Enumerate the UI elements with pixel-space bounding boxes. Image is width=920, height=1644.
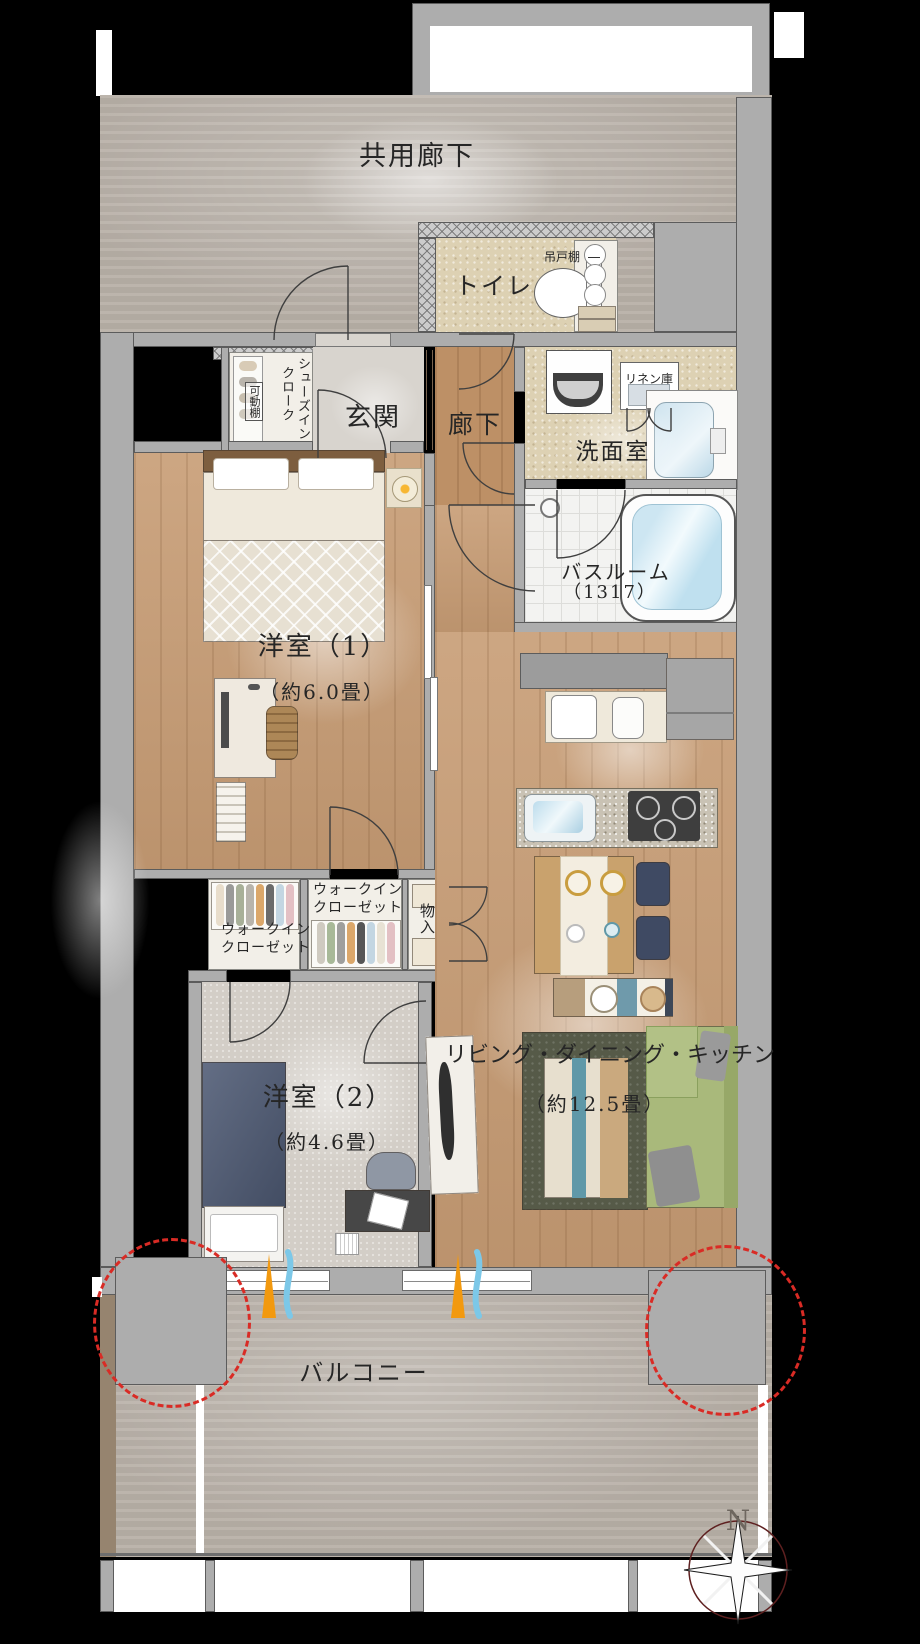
dining-cup xyxy=(604,922,620,938)
label-bathroom-size: （1317） xyxy=(540,582,680,605)
kettle xyxy=(612,697,644,739)
label-storage: 物入 xyxy=(417,903,438,935)
sliding-door-panel xyxy=(424,585,432,679)
pillar-dashed-circle-right xyxy=(645,1245,806,1416)
unit-wall-top xyxy=(100,332,772,347)
balcony-partition-left xyxy=(196,1385,204,1555)
toilet-cabinet xyxy=(578,306,616,319)
floor-plan: N 共用廊下 トイレ 吊戸棚 玄関 シューズイン クローク 可動棚 廊下 リネン… xyxy=(0,0,920,1644)
balcony-railing-line xyxy=(100,1553,772,1556)
label-washroom: 洗面室 xyxy=(553,438,673,467)
railing-post xyxy=(100,1560,114,1612)
kitchen-stove xyxy=(628,791,700,841)
dining-plate-gold xyxy=(600,870,626,896)
wall-wic-top-a xyxy=(134,869,330,879)
label-wic2: ウォークイン クローゼット xyxy=(308,882,408,917)
balcony-railing-band xyxy=(100,1560,772,1612)
window-ldk xyxy=(402,1270,532,1291)
wall-wic-bottom-b xyxy=(290,970,445,982)
railing-post xyxy=(205,1560,215,1612)
room-entrance-floor xyxy=(313,347,424,453)
vanity-faucet xyxy=(710,428,726,454)
label-ldk-size: （約12.5畳） xyxy=(495,1092,695,1117)
sliding-door-panel xyxy=(430,677,438,771)
label-hanging-cupboard: 吊戸棚 xyxy=(536,250,588,265)
bed1-quilt xyxy=(203,540,385,642)
label-wic1-line2: クローゼット xyxy=(211,940,321,958)
railing-post xyxy=(628,1560,638,1612)
rice-cooker xyxy=(551,695,597,739)
wall-washroom-left-b xyxy=(514,443,525,632)
label-room1-size: （約6.0畳） xyxy=(242,680,402,705)
wall-room2-left xyxy=(188,982,202,1267)
left-top-notch xyxy=(96,30,112,96)
shaft-notch xyxy=(774,12,804,58)
bed2-pillow xyxy=(210,1214,278,1252)
sideboard-panel-blue xyxy=(617,979,637,1016)
hanging-cupboard-leader xyxy=(588,257,600,258)
label-room2-size: （約4.6畳） xyxy=(247,1130,407,1155)
wall-washroom-left-a xyxy=(514,347,525,392)
label-movable-shelf: 可動棚 xyxy=(245,382,263,421)
washing-machine xyxy=(546,350,612,414)
bed1-pillow xyxy=(298,458,374,490)
toilet-paper-roll xyxy=(584,284,606,306)
wall-hall-room1 xyxy=(424,453,435,513)
label-wic1-line1: ウォークイン xyxy=(211,922,321,940)
teapot-icon xyxy=(590,985,618,1013)
kitchen-sink xyxy=(524,794,596,842)
railing-post xyxy=(410,1560,424,1612)
label-room2: 洋室（2） xyxy=(248,1082,408,1115)
dining-chair xyxy=(636,862,670,906)
toilet-cabinet xyxy=(578,319,616,332)
ladder-rack xyxy=(216,782,246,842)
low-table-wood xyxy=(600,1058,628,1198)
label-shoes-closet-line2: クローク xyxy=(277,366,296,422)
railing-post xyxy=(758,1560,772,1612)
kitchen-back-counter xyxy=(520,653,668,689)
louver-panel xyxy=(335,1233,359,1255)
unit-wall-right xyxy=(736,97,772,1267)
label-ldk: リビング・ダイニング・キッチン xyxy=(445,1042,745,1070)
wall-bath-top-a xyxy=(525,479,557,489)
label-wic2-line1: ウォークイン xyxy=(308,882,408,900)
sofa-throw xyxy=(647,1145,700,1208)
wall-sic-left xyxy=(221,347,229,453)
balcony-partition-right xyxy=(758,1385,768,1555)
wall-entrance-room1-stub xyxy=(390,441,424,453)
pipe-space xyxy=(654,222,738,332)
ceiling-light xyxy=(386,468,422,508)
toilet-paper-roll xyxy=(584,264,606,286)
room-ldk-floor-upper xyxy=(435,505,514,632)
chair1 xyxy=(266,706,298,760)
dining-chair xyxy=(636,916,670,960)
bed1-pillow xyxy=(213,458,289,490)
label-toilet: トイレ xyxy=(444,271,544,301)
label-common-corridor: 共用廊下 xyxy=(317,140,517,174)
toilet-hatch-wall-left xyxy=(418,238,436,332)
wall-wic-bottom-a xyxy=(188,970,227,982)
low-table-stripe xyxy=(572,1058,586,1198)
label-wic1: ウォークイン クローゼット xyxy=(211,922,321,957)
label-hallway: 廊下 xyxy=(425,409,525,440)
label-balcony: バルコニー xyxy=(264,1358,464,1388)
label-room1: 洋室（1） xyxy=(243,631,403,664)
donut-icon xyxy=(640,986,666,1012)
wic2-hangers xyxy=(311,920,401,968)
shaft-opening xyxy=(430,26,752,92)
chair2 xyxy=(366,1152,416,1190)
shower-head-icon xyxy=(540,498,560,518)
dining-plate xyxy=(566,924,585,943)
pillar-dashed-circle-left xyxy=(93,1238,251,1408)
desk1-monitor xyxy=(221,692,229,748)
label-linen-closet: リネン庫 xyxy=(620,372,678,387)
dining-plate-gold xyxy=(565,870,591,896)
sideboard-panel-dark xyxy=(665,979,673,1016)
label-entrance: 玄関 xyxy=(323,402,423,435)
unit-wall-left xyxy=(100,332,134,1267)
wall-bath-top-b xyxy=(625,479,737,489)
toilet-hatch-wall-top xyxy=(418,222,654,238)
refrigerator xyxy=(666,658,734,740)
label-wic2-line2: クローゼット xyxy=(308,900,408,918)
entrance-doorway xyxy=(315,333,391,347)
